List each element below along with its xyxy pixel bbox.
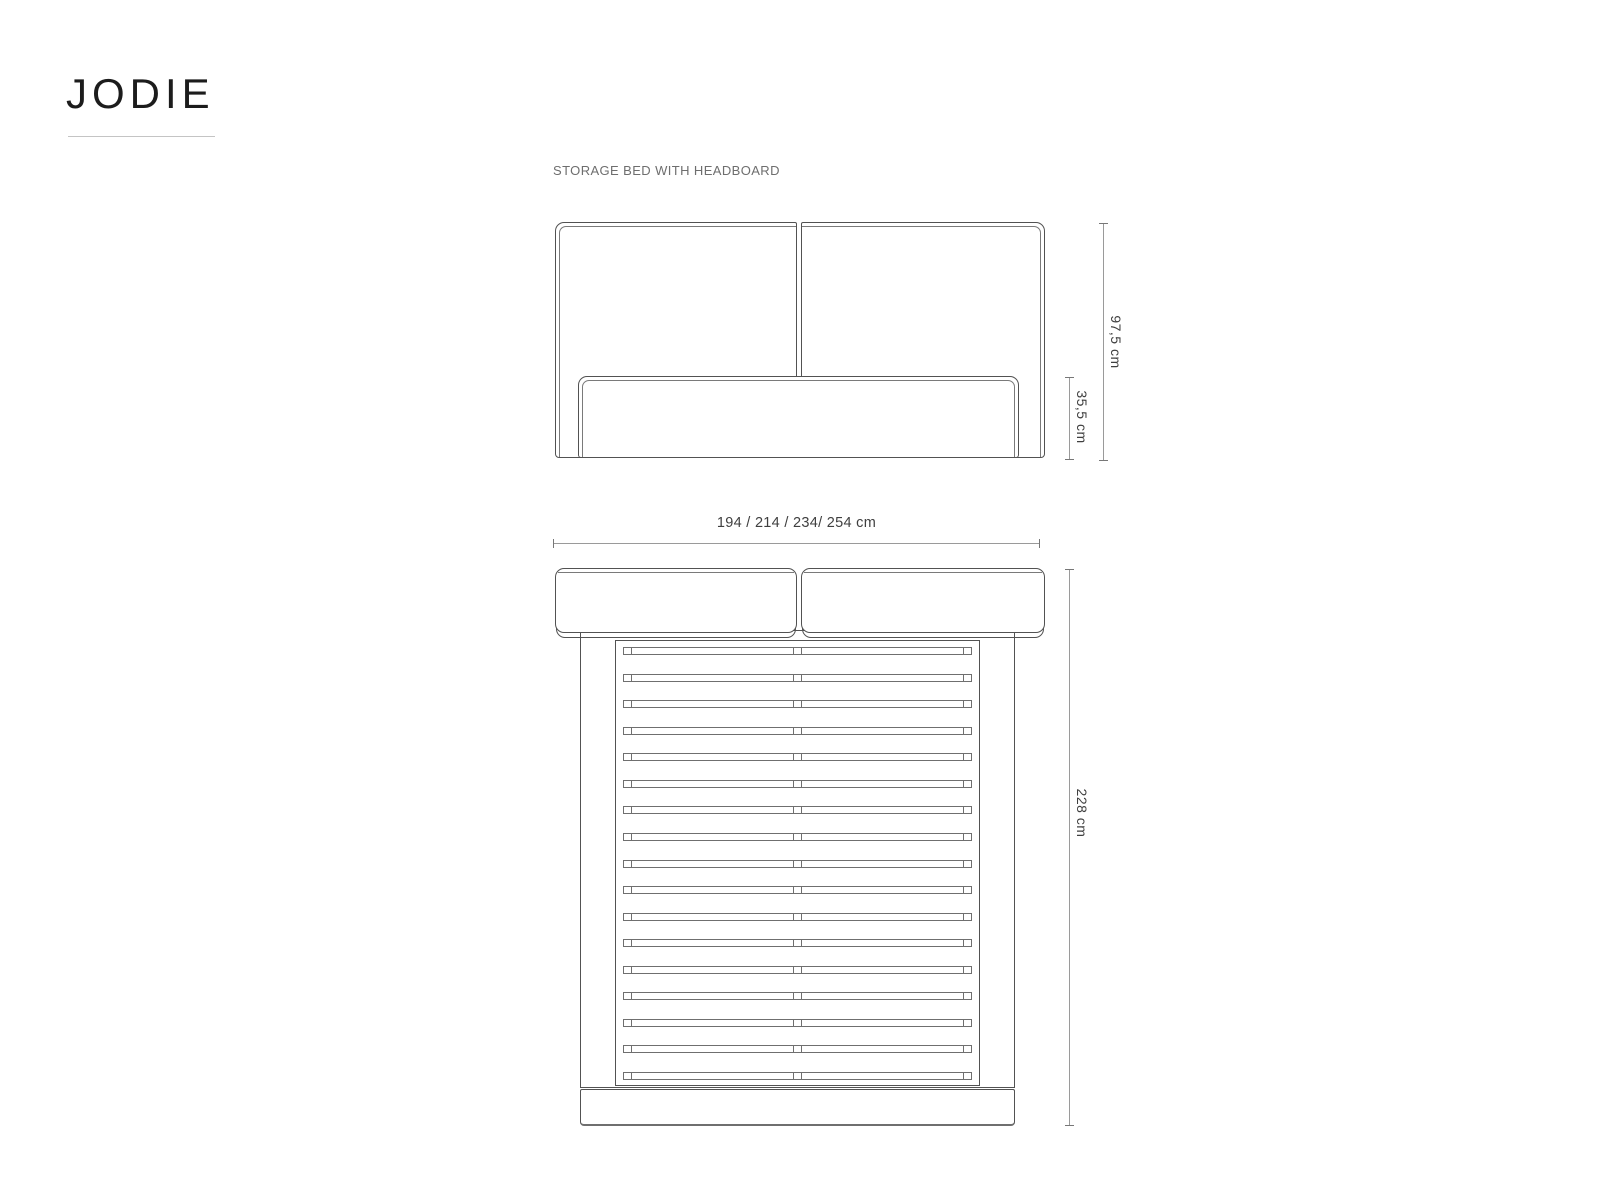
slat-divider — [631, 701, 632, 707]
slat-divider — [631, 940, 632, 946]
slat-divider — [963, 675, 964, 681]
view-subtitle: STORAGE BED WITH HEADBOARD — [553, 163, 780, 178]
panel-seam — [582, 380, 1015, 457]
slat — [623, 886, 972, 894]
slat-divider — [793, 675, 794, 681]
slat-divider — [793, 861, 794, 867]
brand-underline — [68, 136, 215, 137]
slat-divider — [963, 887, 964, 893]
slat-divider — [793, 914, 794, 920]
slat-divider — [631, 1073, 632, 1079]
slat-divider — [801, 940, 802, 946]
slat-divider — [793, 754, 794, 760]
headboard-top-left-panel — [555, 568, 797, 633]
slat-divider — [793, 967, 794, 973]
slat-divider — [801, 993, 802, 999]
slat-divider — [801, 701, 802, 707]
slat-divider — [801, 648, 802, 654]
slat-divider — [631, 834, 632, 840]
slat-divider — [963, 701, 964, 707]
slat-divider — [963, 754, 964, 760]
slat-divider — [801, 728, 802, 734]
slat-divider — [801, 967, 802, 973]
slat-divider — [793, 648, 794, 654]
slat — [623, 806, 972, 814]
dim-label-length: 228 cm — [1074, 789, 1090, 838]
slat-divider — [793, 1020, 794, 1026]
slat — [623, 833, 972, 841]
slat-divider — [801, 861, 802, 867]
slat-divider — [963, 993, 964, 999]
slat — [623, 992, 972, 1000]
slat-divider — [963, 781, 964, 787]
slat-divider — [793, 781, 794, 787]
slat-divider — [801, 1073, 802, 1079]
slat — [623, 966, 972, 974]
dim-tick — [1065, 377, 1074, 378]
dim-label-width: 194 / 214 / 234/ 254 cm — [553, 515, 1040, 531]
slat-divider — [793, 807, 794, 813]
slat-divider — [793, 728, 794, 734]
slat-divider — [631, 993, 632, 999]
slat-divider — [963, 728, 964, 734]
slat-divider — [631, 967, 632, 973]
slat — [623, 939, 972, 947]
slat — [623, 913, 972, 921]
dim-tick — [1099, 223, 1108, 224]
slat-divider — [793, 834, 794, 840]
slat-divider — [631, 1020, 632, 1026]
slat — [623, 1072, 972, 1080]
slat — [623, 1019, 972, 1027]
panel-seam — [804, 572, 1042, 573]
slat — [623, 647, 972, 655]
slat-divider — [631, 781, 632, 787]
slat-divider — [631, 914, 632, 920]
slat-area — [623, 647, 972, 1080]
slat-divider — [963, 648, 964, 654]
drawing-sheet: JODIE STORAGE BED WITH HEADBOARD 97,5 cm… — [0, 0, 1600, 1200]
dim-line — [1069, 377, 1070, 460]
slat — [623, 727, 972, 735]
slat-divider — [801, 675, 802, 681]
slat-divider — [963, 940, 964, 946]
slat-divider — [631, 887, 632, 893]
dim-label-base-height: 35,5 cm — [1074, 390, 1090, 443]
dim-line — [1069, 569, 1070, 1126]
dim-tick — [1065, 1125, 1074, 1126]
slat-divider — [801, 914, 802, 920]
slat — [623, 1045, 972, 1053]
slat-divider — [801, 887, 802, 893]
slat-divider — [631, 861, 632, 867]
dim-line — [1103, 223, 1104, 461]
dim-tick — [1039, 539, 1040, 548]
slat-divider — [963, 861, 964, 867]
slat-divider — [631, 754, 632, 760]
slat-divider — [793, 940, 794, 946]
slat — [623, 753, 972, 761]
slat-divider — [793, 1046, 794, 1052]
slat-divider — [793, 993, 794, 999]
slat-divider — [963, 1046, 964, 1052]
slat — [623, 674, 972, 682]
dim-tick — [1099, 460, 1108, 461]
dim-tick — [1065, 459, 1074, 460]
dim-label-total-height: 97,5 cm — [1108, 315, 1124, 368]
slat-divider — [631, 675, 632, 681]
slat-divider — [963, 834, 964, 840]
slat-divider — [963, 807, 964, 813]
slat-divider — [793, 887, 794, 893]
brand-title: JODIE — [66, 70, 215, 118]
slat-divider — [963, 914, 964, 920]
slat — [623, 780, 972, 788]
slat-divider — [631, 648, 632, 654]
slat-divider — [631, 807, 632, 813]
slat-divider — [801, 1046, 802, 1052]
slat-divider — [631, 728, 632, 734]
panel-seam — [558, 572, 794, 573]
dim-tick — [553, 539, 554, 548]
slat-divider — [963, 967, 964, 973]
headboard-top-right-panel — [801, 568, 1045, 633]
slat-divider — [801, 781, 802, 787]
slat-divider — [801, 1020, 802, 1026]
slat-divider — [793, 701, 794, 707]
slat-divider — [631, 1046, 632, 1052]
dim-tick — [1065, 569, 1074, 570]
footer-panel — [580, 1089, 1015, 1126]
slat-divider — [963, 1073, 964, 1079]
slat-divider — [801, 807, 802, 813]
slat-divider — [793, 1073, 794, 1079]
bed-base-panel — [578, 376, 1019, 458]
slat-divider — [963, 1020, 964, 1026]
slat — [623, 860, 972, 868]
dim-line — [553, 543, 1040, 544]
slat — [623, 700, 972, 708]
slat-divider — [801, 754, 802, 760]
slat-divider — [801, 834, 802, 840]
